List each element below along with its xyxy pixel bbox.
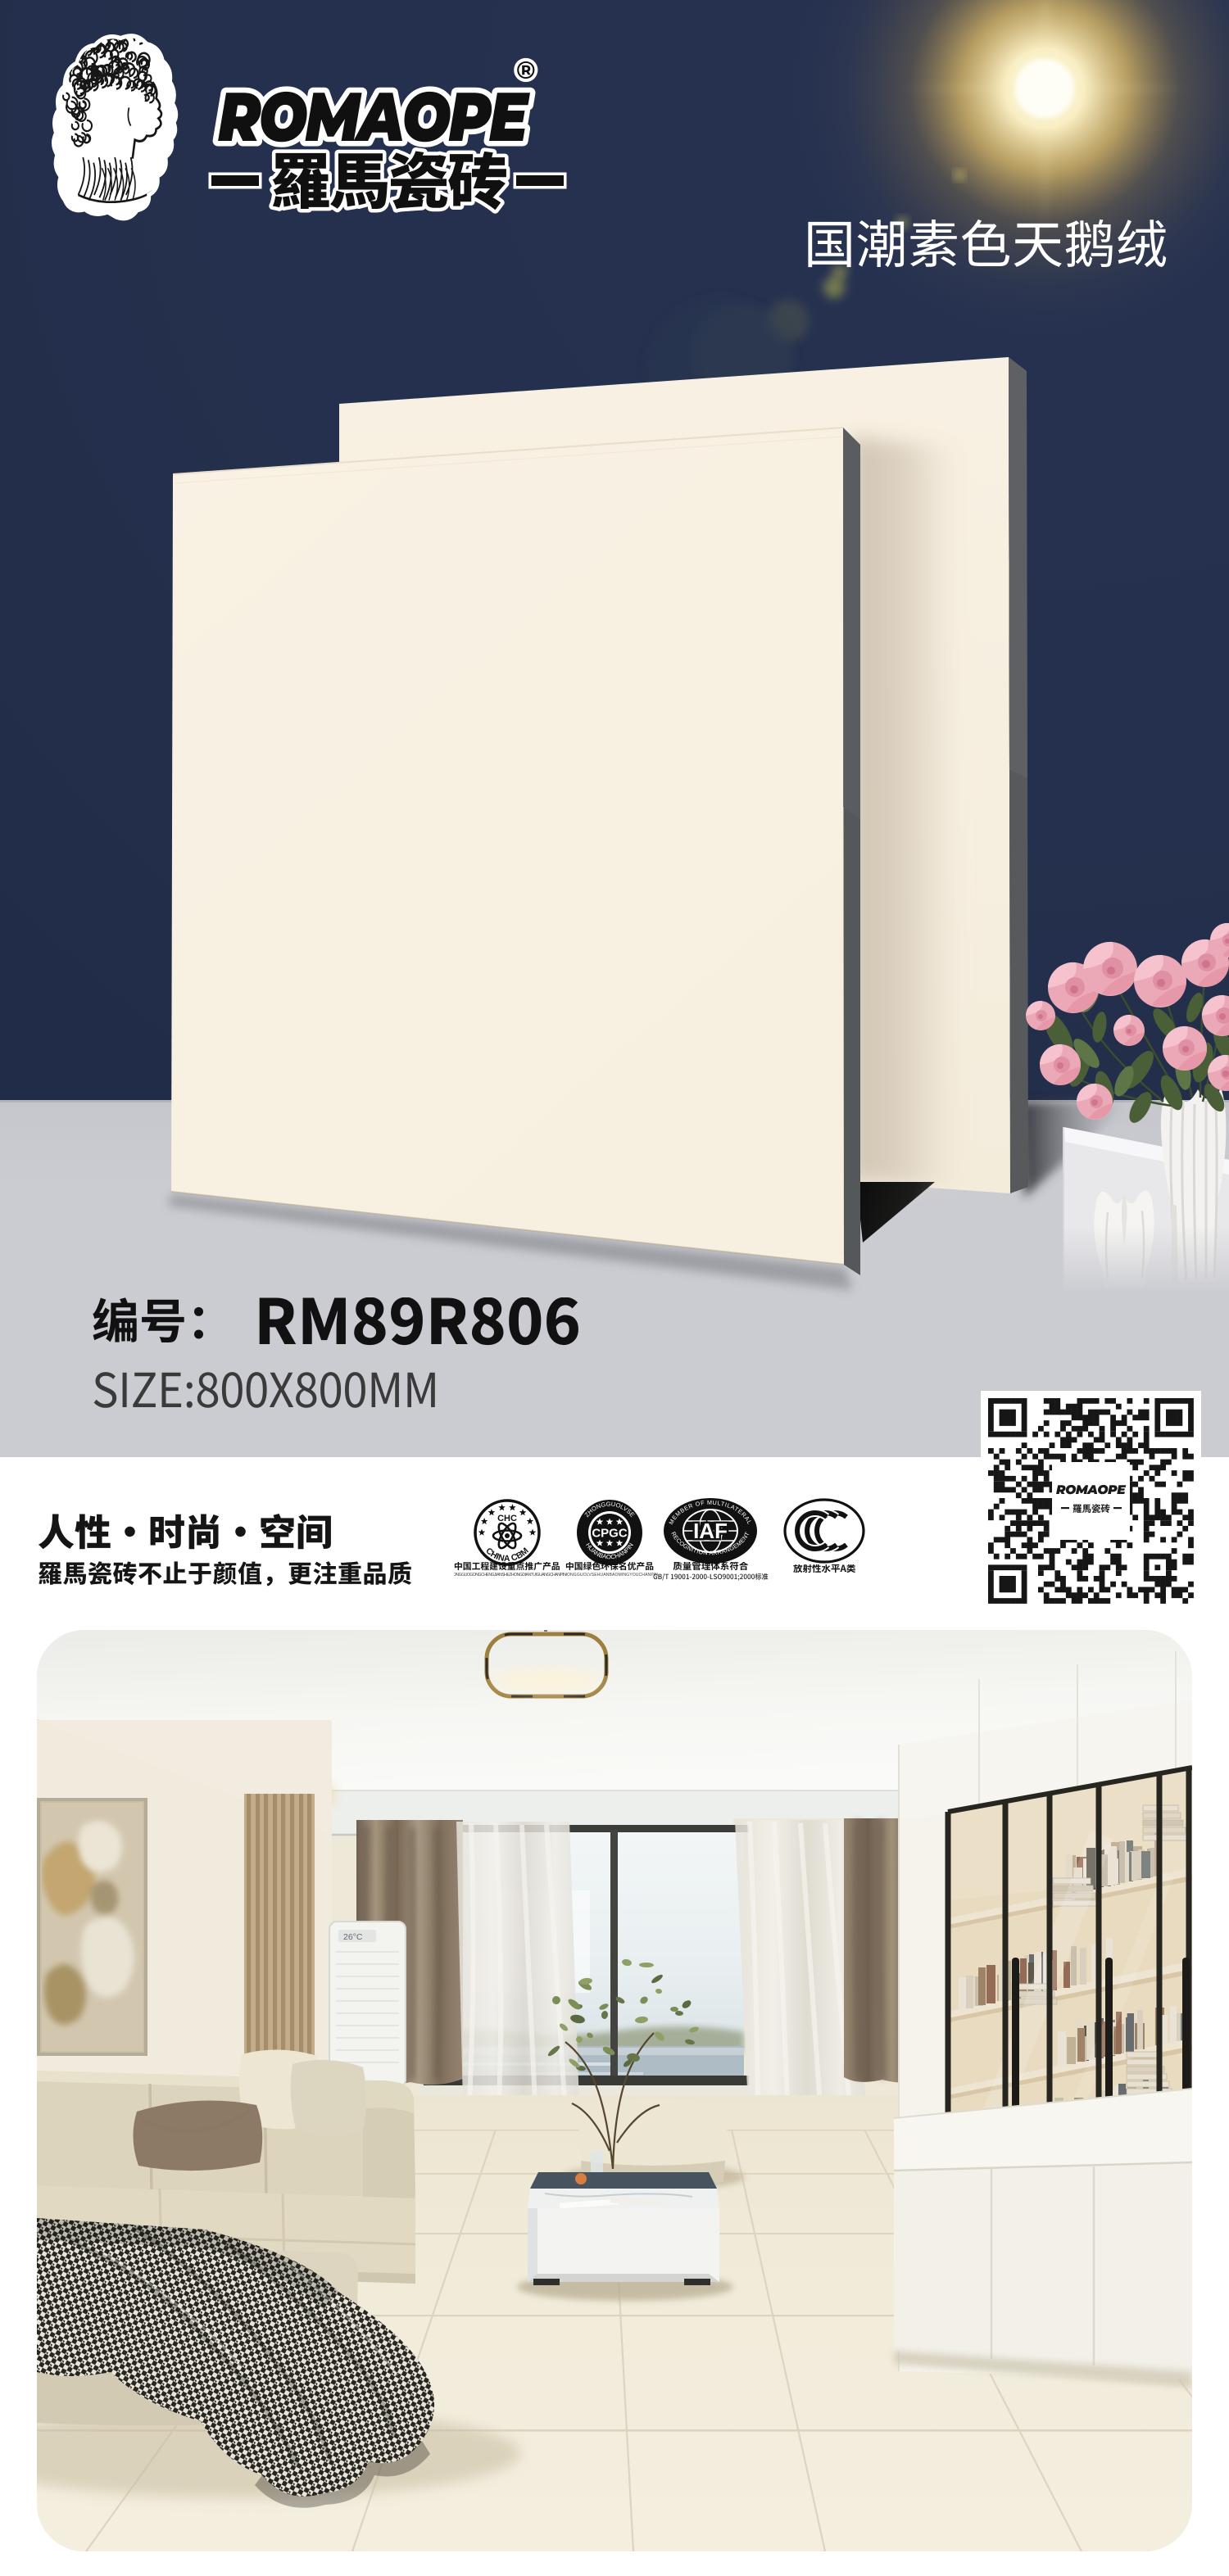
svg-text:ZHONGGUOLVSEHUANBAOMINGYOUCHAN: ZHONGGUOLVSEHUANBAOMINGYOUCHANPIN <box>565 1573 658 1578</box>
svg-text:26°C: 26°C <box>343 1932 363 1942</box>
svg-text:CPGC: CPGC <box>592 1527 628 1541</box>
svg-text:CHC: CHC <box>497 1514 517 1523</box>
svg-text:IAF: IAF <box>693 1519 728 1543</box>
svg-text:ZHONGGUOGONGCHENGJIANSHEZHONGD: ZHONGGUOGONGCHENGJIANSHEZHONGDIANTUIGUAN… <box>454 1573 566 1578</box>
